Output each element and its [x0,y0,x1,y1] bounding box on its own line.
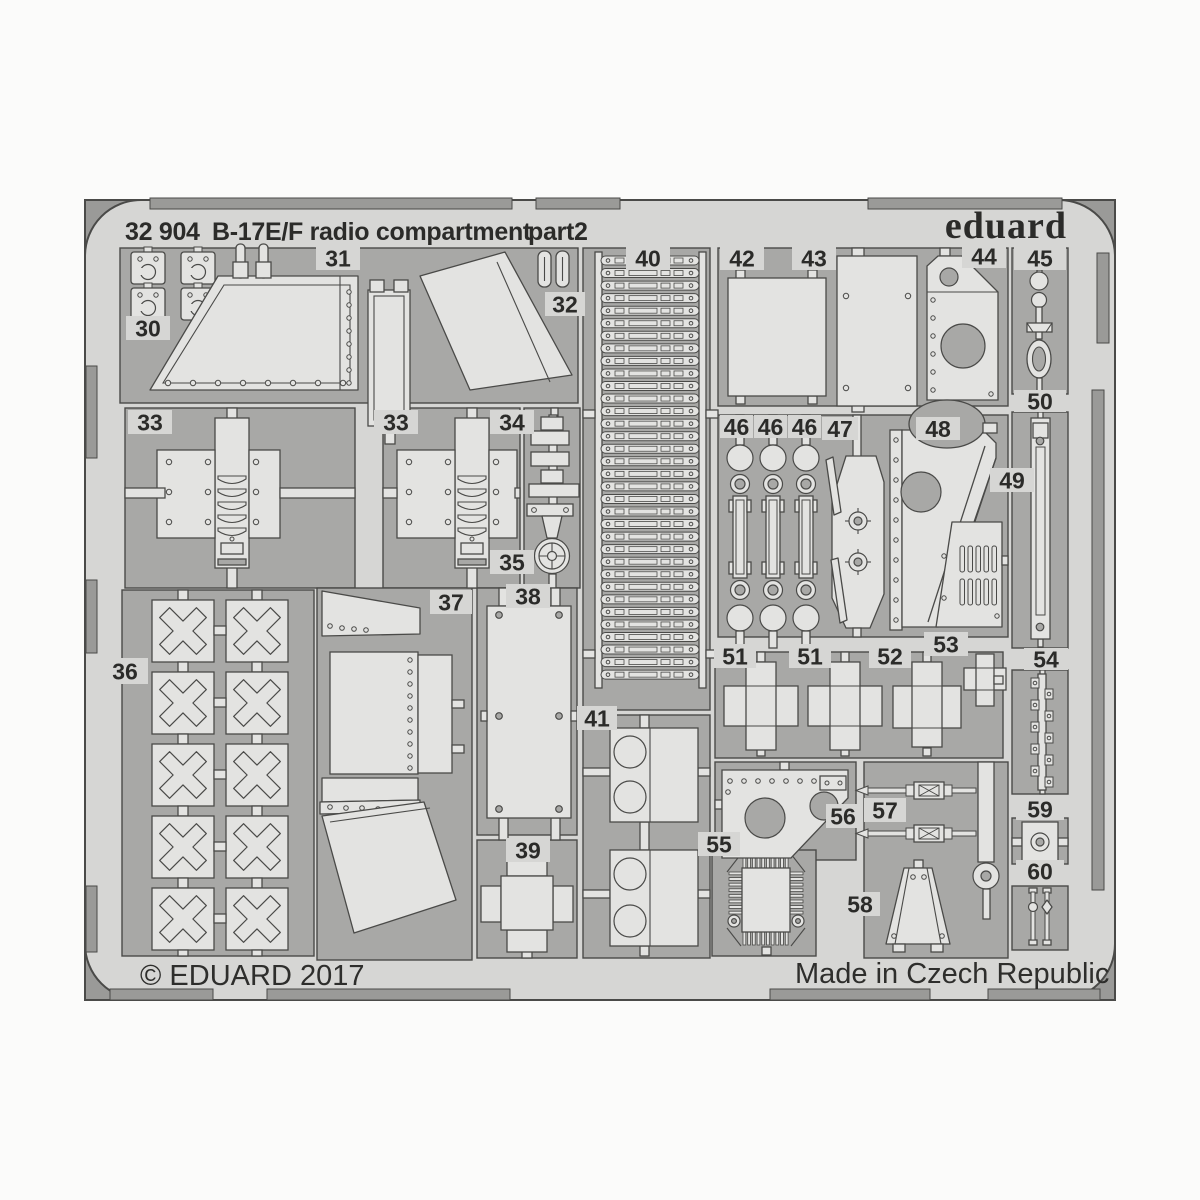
sheet-part-label: part2 [528,218,588,246]
fret-diagram: 3031323333343536373839404142434445464646… [0,0,1200,1200]
fret-render: 3031323333343536373839404142434445464646… [85,198,1115,1000]
part-label-58: 58 [847,892,873,918]
brand-logo: eduard [945,205,1067,247]
part-label-49: 49 [999,468,1025,494]
part-label-37: 37 [438,590,464,616]
opening-r60 [1012,886,1068,950]
part-label-51b: 51 [797,644,823,670]
part-label-38: 38 [515,584,541,610]
part-label-34: 34 [499,410,525,436]
part-46-straps [727,415,819,648]
made-in-text: Made in Czech Republic [795,958,1109,990]
copyright-text: © EDUARD 2017 [140,960,364,992]
part-label-35: 35 [499,550,525,576]
part-label-33b: 33 [383,410,409,436]
fret-edge-tab [1097,253,1109,343]
part-label-50: 50 [1027,389,1053,415]
part-label-46a: 46 [724,414,750,440]
part-38 [481,588,577,840]
part-42 [728,270,826,404]
sheet-code: 32 904 [125,218,200,246]
part-label-33a: 33 [137,410,163,436]
part-label-39: 39 [515,838,541,864]
fret-edge-tab [150,198,512,209]
part-label-43: 43 [801,246,827,272]
part-label-41: 41 [584,706,610,732]
sheet-title: B-17E/F radio compartment [212,218,532,246]
page: 3031323333343536373839404142434445464646… [0,0,1200,1200]
part-label-31: 31 [325,246,351,272]
part-label-60: 60 [1027,859,1053,885]
fret-edge-tab [536,198,620,209]
part-label-48: 48 [925,416,951,442]
part-label-51a: 51 [722,644,748,670]
part-label-46c: 46 [792,414,818,440]
part-label-53: 53 [933,632,959,658]
part-label-40: 40 [635,246,661,272]
part-label-30: 30 [135,316,161,342]
part-label-46b: 46 [758,414,784,440]
part-label-44: 44 [971,244,997,270]
fret-edge-tab [1092,390,1104,890]
fret-edge-tab [86,580,97,653]
part-label-36: 36 [112,659,138,685]
part-label-32: 32 [552,292,578,318]
part-label-57: 57 [872,798,898,824]
part-label-47: 47 [827,416,853,442]
fret-edge-tab [86,886,97,952]
fret-edge-tab [86,366,97,458]
part-label-55: 55 [706,832,732,858]
part-label-42: 42 [729,246,755,272]
fret-edge-tab [770,989,930,1000]
part-43 [837,248,917,412]
part-label-59: 59 [1027,797,1053,823]
part-label-52: 52 [877,644,903,670]
fret-edge-tab [988,989,1100,1000]
part-label-56: 56 [830,804,856,830]
part-label-54: 54 [1033,647,1059,673]
part-label-45: 45 [1027,246,1053,272]
part-50 [1031,412,1050,647]
